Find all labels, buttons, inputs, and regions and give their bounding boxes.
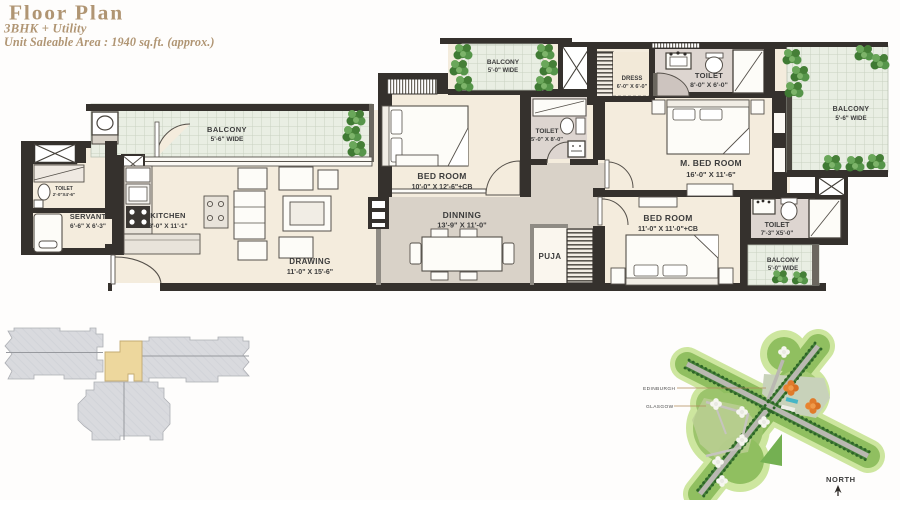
svg-text:6'-6" X 6'-3": 6'-6" X 6'-3" [70,223,106,230]
svg-text:5'-6" WIDE: 5'-6" WIDE [211,136,244,143]
svg-text:NORTH: NORTH [826,475,856,484]
svg-text:10'-0" X 12'-6"+CB: 10'-0" X 12'-6"+CB [412,184,473,191]
svg-text:BALCONY: BALCONY [833,106,870,113]
svg-text:3BHK + Utility: 3BHK + Utility [3,22,87,36]
svg-text:Unit Saleable Area : 1940 sq.f: Unit Saleable Area : 1940 sq.ft. (approx… [4,35,215,49]
svg-text:KITCHEN: KITCHEN [150,211,185,220]
svg-text:8'-0" X 11'-1": 8'-0" X 11'-1" [148,223,187,230]
svg-text:BALCONY: BALCONY [767,257,800,264]
svg-text:BED ROOM: BED ROOM [417,171,466,181]
svg-text:5'-6" WIDE: 5'-6" WIDE [835,115,866,122]
svg-text:M. BED ROOM: M. BED ROOM [680,158,742,168]
svg-text:DRESS: DRESS [622,76,643,82]
svg-text:BALCONY: BALCONY [487,59,520,66]
svg-text:BED ROOM: BED ROOM [643,213,692,223]
svg-text:5'-0" WIDE: 5'-0" WIDE [488,68,518,74]
svg-text:2'-0"X4'-6": 2'-0"X4'-6" [53,192,75,197]
svg-text:DINNING: DINNING [443,210,482,220]
svg-text:DRAWING: DRAWING [289,257,330,266]
svg-text:BALCONY: BALCONY [207,125,247,134]
svg-text:5'-0" X 8'-0": 5'-0" X 8'-0" [531,137,563,143]
svg-text:11'-0" X 15'-6": 11'-0" X 15'-6" [287,269,333,276]
svg-text:EDINBURGH: EDINBURGH [643,386,676,392]
svg-text:13'-9" X 11'-0": 13'-9" X 11'-0" [437,221,487,230]
svg-text:TOILET: TOILET [695,71,723,80]
svg-text:16'-0" X 11'-6": 16'-0" X 11'-6" [686,170,736,179]
svg-text:6'-0" X 6'-0": 6'-0" X 6'-0" [617,84,648,90]
svg-text:SERVANT: SERVANT [70,212,107,221]
svg-text:PUJA: PUJA [539,252,562,261]
svg-text:7'-3" X5'-0": 7'-3" X5'-0" [761,230,794,237]
svg-text:TOILET: TOILET [765,222,790,229]
svg-text:TOILET: TOILET [536,128,559,135]
svg-text:GLASGOW: GLASGOW [646,404,674,410]
svg-text:8'-0" X 6'-0": 8'-0" X 6'-0" [690,82,728,89]
svg-text:11'-0" X 11'-0"+CB: 11'-0" X 11'-0"+CB [638,226,698,233]
